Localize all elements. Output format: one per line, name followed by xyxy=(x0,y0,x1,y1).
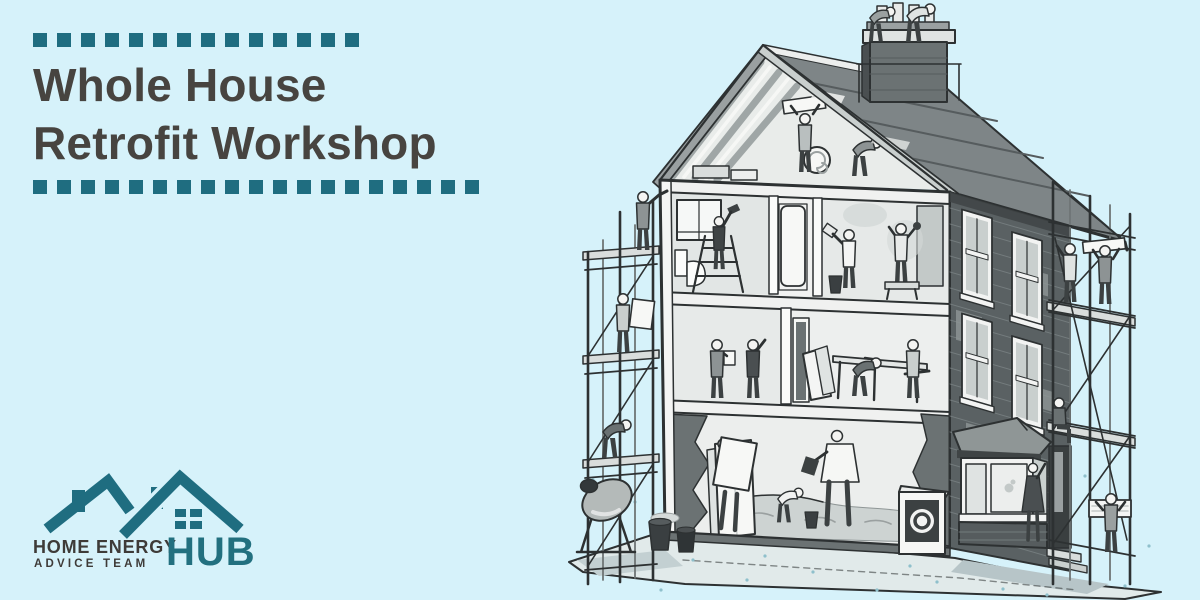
partition-wall xyxy=(813,198,822,296)
dotted-line-top xyxy=(33,33,553,47)
bay-brick-base xyxy=(959,522,1047,548)
worker xyxy=(617,294,630,352)
partition-wall xyxy=(781,308,791,404)
plaster-hawk xyxy=(913,222,921,230)
heat-pump xyxy=(899,486,949,554)
logo-window-icon xyxy=(175,509,202,529)
title-line-1: Whole House xyxy=(33,56,553,114)
logo: HOME ENERGY ADVICE TEAM HUB xyxy=(28,450,278,585)
plasterboard xyxy=(713,437,757,491)
title-line-2: Retrofit Workshop xyxy=(33,114,553,172)
cement-mixer xyxy=(575,471,639,552)
worker xyxy=(602,420,631,458)
worker xyxy=(637,192,650,250)
sash-window xyxy=(1010,231,1044,331)
title-block: Whole House Retrofit Workshop xyxy=(33,33,553,194)
event-banner: Whole House Retrofit Workshop HOME ENERG… xyxy=(0,0,1200,600)
house-illustration xyxy=(565,0,1165,600)
logo-home-energy: HOME ENERGY xyxy=(33,537,177,558)
dotted-line-bottom xyxy=(33,180,553,194)
bucket xyxy=(829,276,842,293)
logo-advice-team: ADVICE TEAM xyxy=(34,558,148,570)
logo-roof-left xyxy=(47,481,130,529)
sash-window xyxy=(960,313,994,413)
logo-hub: HUB xyxy=(166,530,256,575)
water-cylinder xyxy=(781,206,805,286)
worker xyxy=(1099,246,1112,304)
attic-boxes xyxy=(693,166,729,178)
carried-board xyxy=(629,299,654,329)
sash-window xyxy=(960,209,994,309)
bucket xyxy=(805,512,818,528)
window-decal xyxy=(1005,484,1014,493)
event-title: Whole House Retrofit Workshop xyxy=(33,56,553,173)
chimney xyxy=(857,3,961,102)
clipboard xyxy=(724,351,735,365)
partition-wall xyxy=(769,196,778,294)
